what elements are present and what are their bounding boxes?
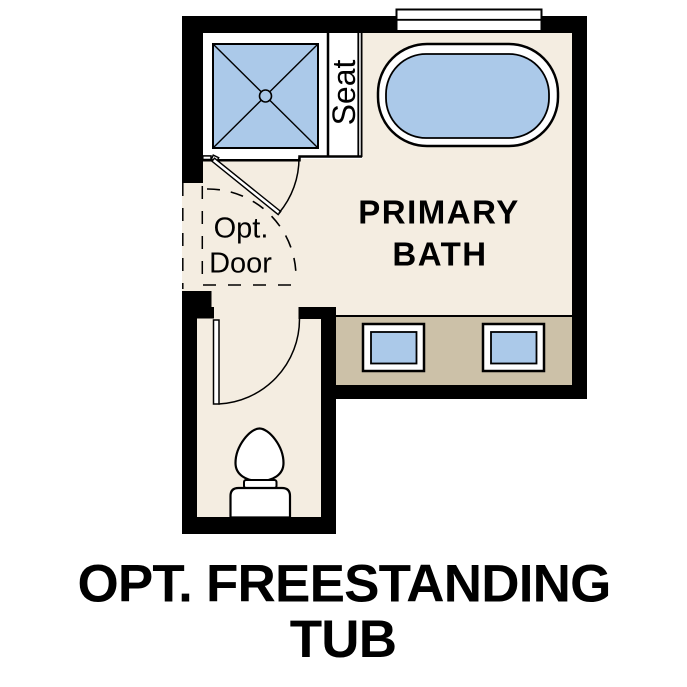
svg-text:OPT. FREESTANDING: OPT. FREESTANDING	[77, 555, 610, 614]
svg-text:PRIMARY: PRIMARY	[358, 194, 519, 231]
svg-text:BATH: BATH	[392, 236, 487, 273]
svg-text:TUB: TUB	[290, 610, 397, 669]
svg-text:Seat: Seat	[326, 59, 362, 125]
svg-text:Opt.: Opt.	[214, 213, 269, 245]
svg-text:Door: Door	[209, 248, 272, 280]
